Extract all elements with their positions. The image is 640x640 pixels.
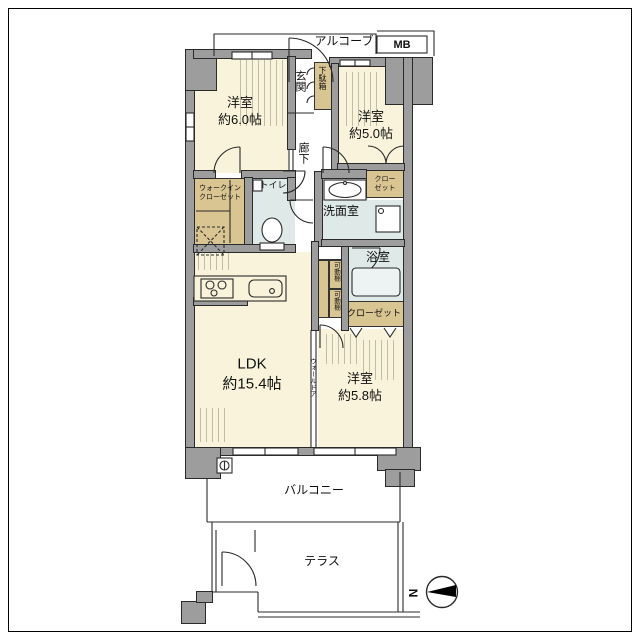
window-room1-left — [186, 113, 194, 141]
walk-in-closet-label: ウォークインクローゼット — [199, 184, 241, 202]
movable-shelf-lower-label: 可動棚 — [332, 291, 339, 311]
line-overlay — [0, 0, 640, 640]
terrace-step-block2 — [197, 592, 212, 602]
room2-closet-doors-icon — [368, 146, 404, 164]
hallway-label: 廊下 — [297, 142, 308, 164]
toilet-label: トイレ — [259, 180, 286, 192]
room3-closet-label: クローゼット — [347, 308, 401, 320]
terrace-step-block — [182, 602, 205, 623]
shoe-cabinet-doors-icon — [307, 68, 314, 103]
mb-label: MB — [393, 38, 410, 52]
entrance-label: 玄関 — [294, 70, 305, 92]
window-ldk-bottom — [233, 448, 298, 455]
room2-closet-label: クローゼット — [375, 175, 396, 193]
room2-door-arc-icon — [323, 147, 349, 173]
north-arrow-icon — [427, 577, 458, 608]
alcove-label: アルコーブ — [315, 34, 374, 50]
terrace-door-arc-icon — [222, 552, 256, 586]
room2-label: 洋室約5.0帖 — [349, 109, 393, 143]
north-label: N — [406, 589, 420, 598]
room3-closet-fold-icon — [350, 328, 396, 337]
wall-door-label: ウォールドア — [308, 358, 315, 397]
refrigerator-space-icon — [197, 227, 224, 255]
bathroom-label: 浴室 — [366, 250, 390, 266]
room3-door-arc-icon — [320, 325, 343, 348]
washroom-label: 洗面室 — [323, 204, 359, 220]
kitchen-counter-icon — [194, 276, 286, 301]
shoe-cabinet-label: 下駄箱 — [318, 66, 326, 90]
washroom-sink-icon — [324, 180, 366, 200]
floor-plan-canvas: アルコーブ MB 玄関 下駄箱 洋室約6.0帖 洋室約5.0帖 廊下 トイレ ウ… — [0, 0, 640, 640]
room1-sliding-door-icon — [289, 150, 293, 170]
window-room1-top — [232, 52, 272, 59]
washing-machine-icon — [376, 206, 400, 232]
window-room2-top — [340, 60, 370, 66]
bathtub-icon — [352, 268, 400, 296]
terrace-label: テラス — [304, 554, 340, 570]
room3-label: 洋室約5.8帖 — [338, 371, 382, 405]
ldk-door-arc-icon — [290, 200, 313, 223]
wic-door-arc-icon — [214, 147, 240, 173]
balcony-faucet-icon — [217, 458, 232, 473]
ldk-label: LDK約15.4帖 — [222, 355, 281, 394]
balcony-label: バルコニー — [284, 483, 344, 499]
room1-label: 洋室約6.0帖 — [218, 95, 262, 129]
window-room3-bottom — [314, 448, 396, 455]
movable-shelf-upper-label: 可動棚 — [332, 262, 339, 282]
